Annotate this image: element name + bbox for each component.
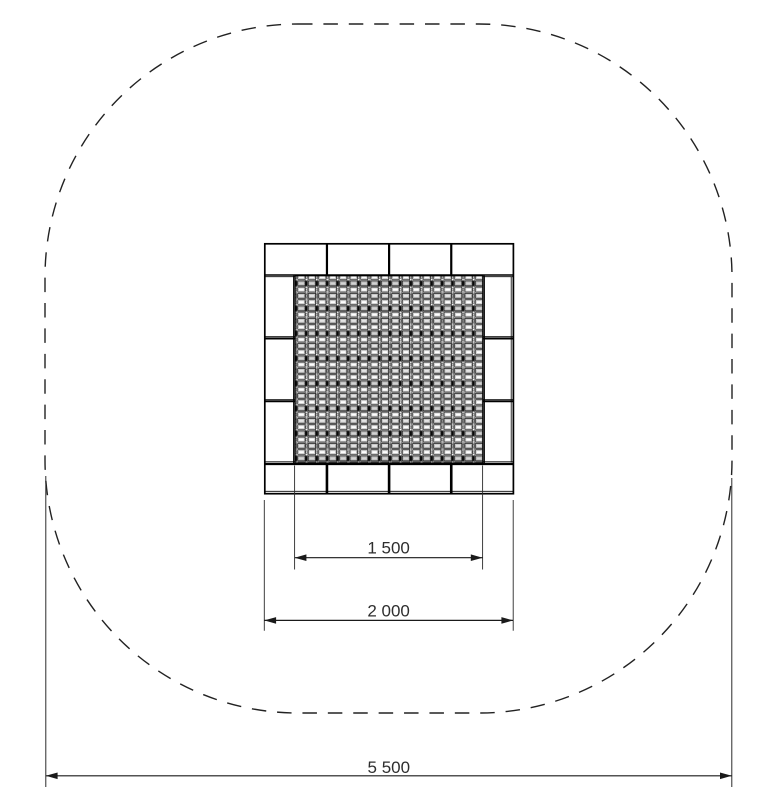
svg-text:2 000: 2 000 <box>367 601 410 620</box>
svg-text:5 500: 5 500 <box>368 758 411 777</box>
svg-text:1 500: 1 500 <box>367 539 410 558</box>
